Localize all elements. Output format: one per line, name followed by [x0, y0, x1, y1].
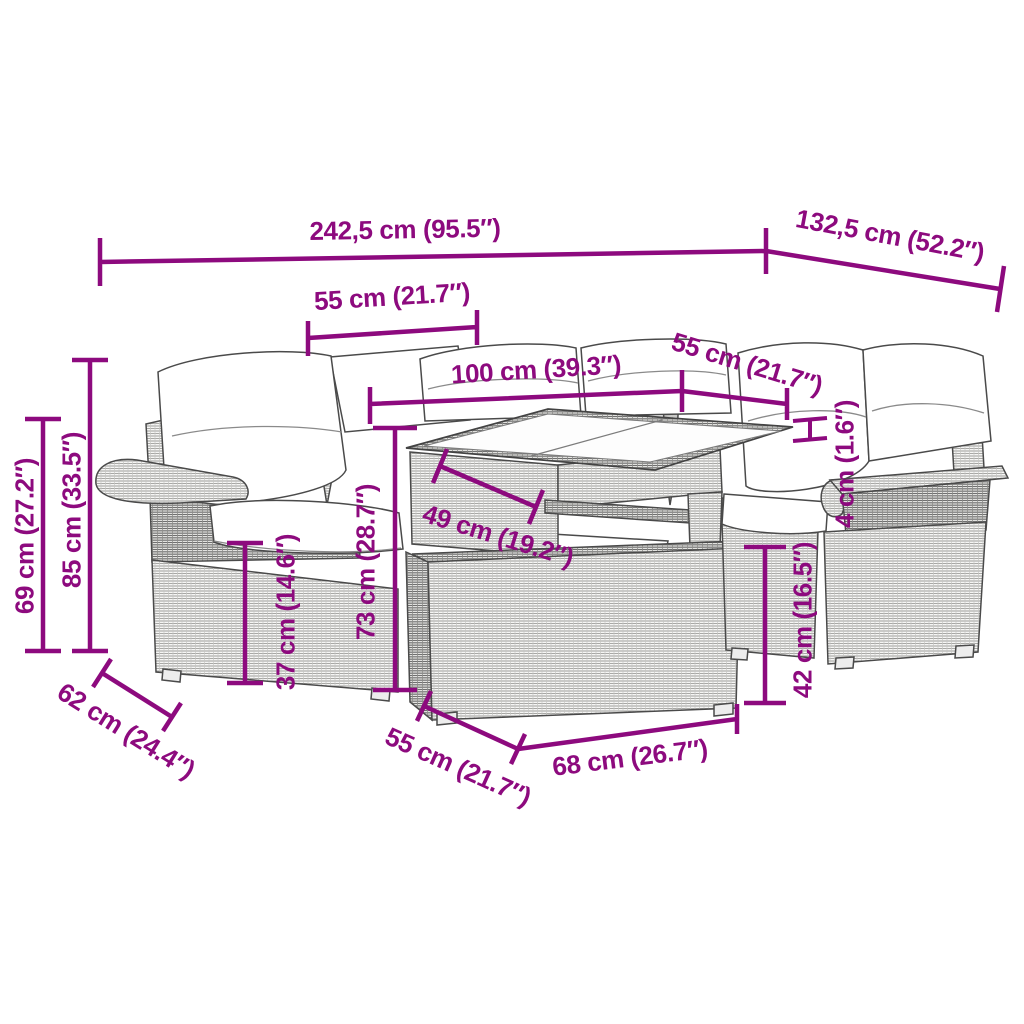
- dim-ottoman-height-label: 42 cm (16.5″): [789, 542, 816, 698]
- dim-total-width-label: 242,5 cm (95.5″): [309, 215, 501, 246]
- dim-glass-thickness-label: 4 cm (1.6″): [831, 400, 858, 528]
- dimension-diagram: 242,5 cm (95.5″) 132,5 cm (52.2″) 55 cm …: [0, 0, 1024, 1024]
- right-seat-cushion: [722, 494, 828, 534]
- furniture-illustration: [0, 0, 1024, 1024]
- dim-seat-height-label: 37 cm (14.6″): [272, 534, 299, 690]
- dim-total-height-label: 85 cm (33.5″): [58, 432, 85, 588]
- ottoman: [406, 541, 740, 725]
- dim-table-height-label: 73 cm (28.7″): [352, 484, 379, 640]
- dim-armrest-height-label: 69 cm (27.2″): [11, 458, 38, 614]
